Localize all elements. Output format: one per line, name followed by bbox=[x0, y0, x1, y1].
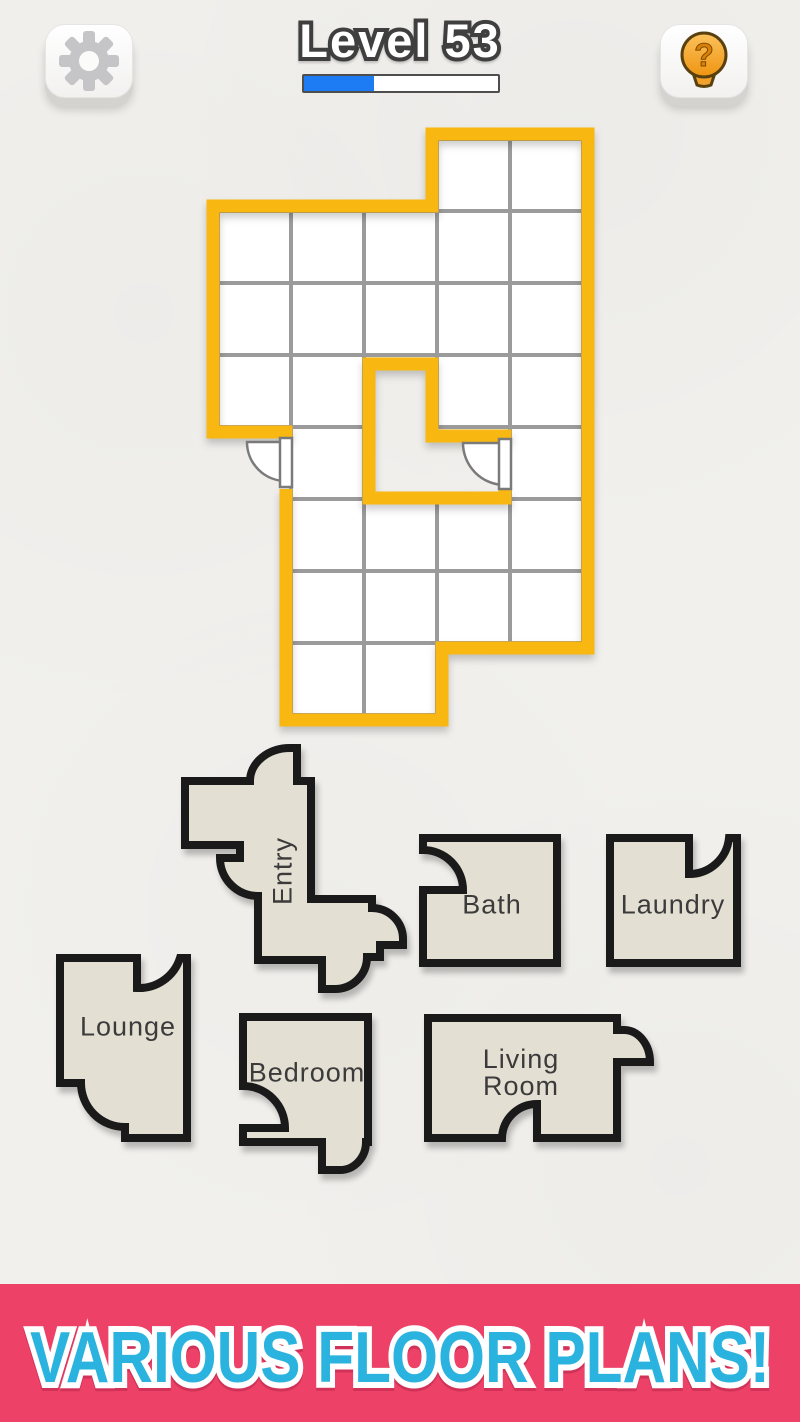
board-cell bbox=[291, 427, 364, 499]
exterior-left-door-icon bbox=[247, 438, 292, 487]
piece-bath[interactable] bbox=[423, 838, 557, 963]
board-cell bbox=[364, 643, 437, 715]
board-cell bbox=[364, 499, 437, 571]
board-cell bbox=[218, 355, 291, 427]
board-cell bbox=[510, 139, 583, 211]
board-cell bbox=[510, 283, 583, 355]
promo-banner-text: VARIOUS FLOOR PLANS! bbox=[30, 1318, 770, 1398]
board-cell bbox=[218, 211, 291, 283]
board-cell bbox=[437, 571, 510, 643]
board-cell bbox=[437, 139, 510, 211]
piece-laundry[interactable] bbox=[610, 838, 737, 963]
promo-banner-textbox: VARIOUS FLOOR PLANS! bbox=[0, 1284, 800, 1422]
piece-entry[interactable] bbox=[185, 748, 403, 989]
board-cell bbox=[364, 283, 437, 355]
board-cell bbox=[364, 211, 437, 283]
floor-plan-board[interactable] bbox=[0, 0, 800, 1422]
board-cell bbox=[291, 211, 364, 283]
board-cell bbox=[510, 355, 583, 427]
board-cell bbox=[291, 355, 364, 427]
board-cell bbox=[364, 571, 437, 643]
promo-banner: VARIOUS FLOOR PLANS! bbox=[0, 1284, 800, 1422]
doors bbox=[247, 438, 511, 489]
board-cell bbox=[437, 499, 510, 571]
board-cell bbox=[437, 355, 510, 427]
board-cell bbox=[291, 643, 364, 715]
piece-bedroom[interactable] bbox=[243, 1017, 368, 1170]
board-cell bbox=[510, 427, 583, 499]
board-cell bbox=[510, 211, 583, 283]
board-cell bbox=[510, 571, 583, 643]
board-cell bbox=[291, 499, 364, 571]
piece-lounge[interactable] bbox=[60, 958, 187, 1138]
board-cell bbox=[510, 499, 583, 571]
board-cell bbox=[291, 571, 364, 643]
piece-living-room[interactable] bbox=[428, 1018, 650, 1138]
board-cell bbox=[218, 283, 291, 355]
board-cell bbox=[291, 283, 364, 355]
courtyard-door-icon bbox=[463, 439, 511, 489]
game-screen: Level 53 ? bbox=[0, 0, 800, 1422]
board-cell bbox=[437, 211, 510, 283]
board-cell bbox=[437, 283, 510, 355]
